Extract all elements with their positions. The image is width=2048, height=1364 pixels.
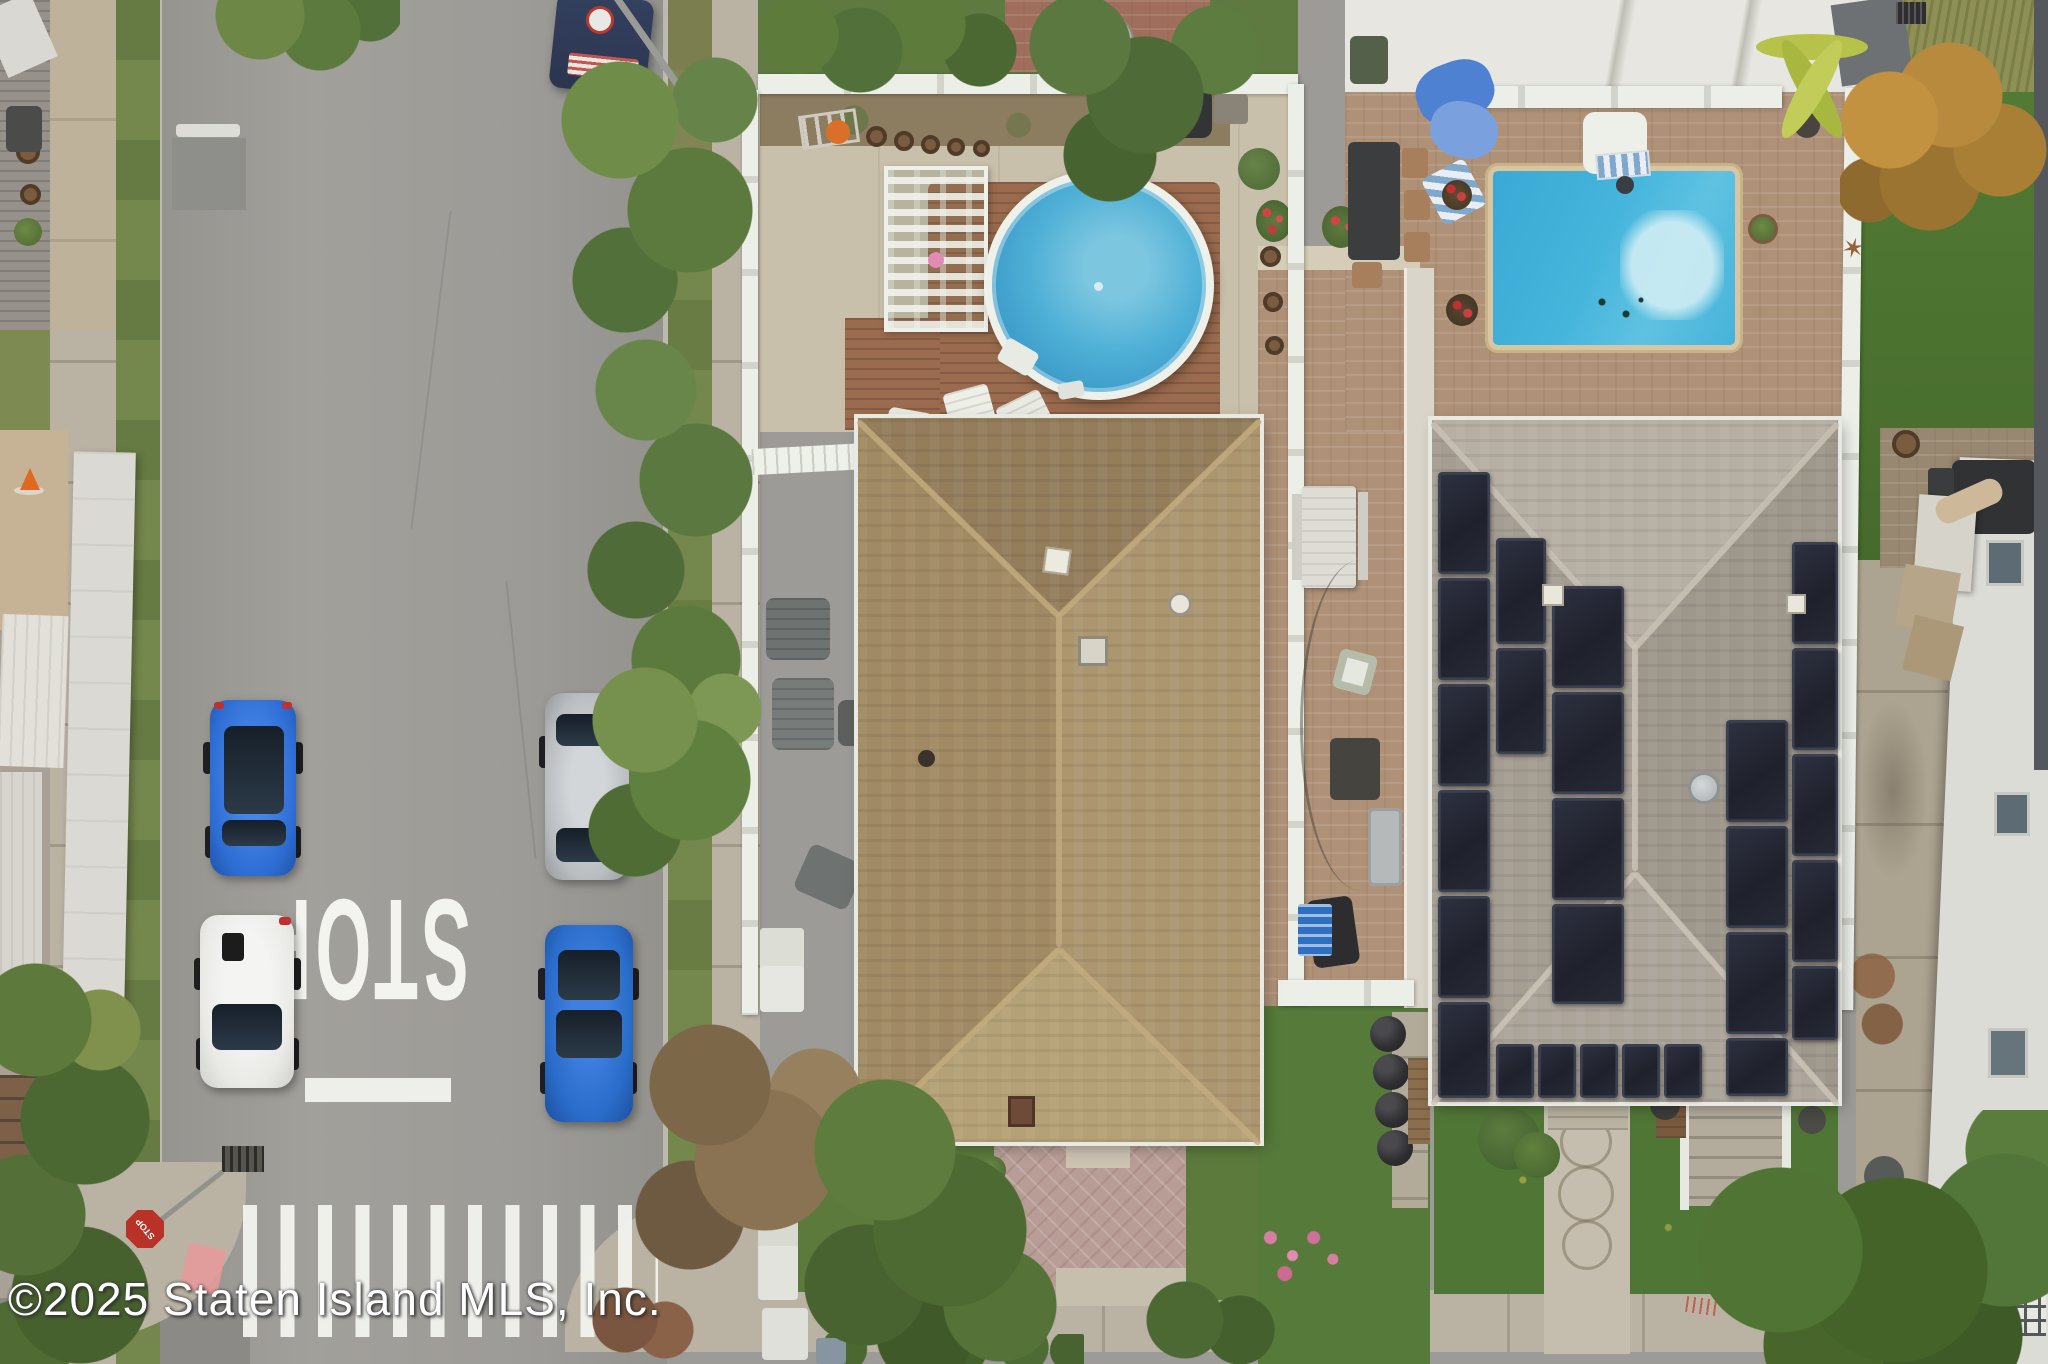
patio-sofa xyxy=(772,678,834,750)
dark-equipment xyxy=(6,106,42,152)
patio-chair xyxy=(792,842,865,911)
pink-pool-toy xyxy=(928,252,944,268)
grill-cover-round xyxy=(1375,1092,1411,1128)
neighbor-patio-chair xyxy=(1928,468,1954,498)
orange-tub xyxy=(826,120,850,144)
solar-panel xyxy=(1580,1044,1618,1098)
potted-plant xyxy=(14,218,42,246)
solar-panel xyxy=(1792,648,1838,750)
solar-panel xyxy=(1438,790,1490,892)
asphalt-patch xyxy=(172,138,246,210)
walkway-step xyxy=(1548,1104,1628,1130)
center-house-roof xyxy=(858,418,1260,1142)
patio-planter xyxy=(1892,430,1920,458)
solar-panel xyxy=(1438,1002,1490,1098)
walkway-medallion xyxy=(1562,1220,1612,1270)
solar-panel xyxy=(1726,826,1788,928)
sidewalk-left-tan-tint xyxy=(50,0,116,330)
solar-panel xyxy=(1552,692,1624,794)
solar-panel xyxy=(1792,860,1838,962)
white-awning xyxy=(0,772,42,980)
dried-leaves xyxy=(1846,940,1912,1060)
solar-panel xyxy=(1496,648,1546,754)
trees-upper-center xyxy=(1020,0,1270,220)
solar-panel xyxy=(1538,1044,1576,1098)
red-flower-plant xyxy=(1446,294,1478,326)
car-taillight xyxy=(214,702,224,709)
gap-gate-fence xyxy=(1278,980,1414,1006)
pool-center-fitting xyxy=(1094,282,1103,291)
car-sunroof-open xyxy=(222,933,244,961)
solar-panel xyxy=(1552,798,1624,900)
skylight-window xyxy=(1986,540,2024,586)
roof-vent-square xyxy=(1042,546,1071,575)
white-awning xyxy=(0,614,69,768)
center-ridge xyxy=(1632,645,1638,871)
skylight-window xyxy=(1994,792,2030,836)
flower-pot xyxy=(866,126,887,147)
garden-hose xyxy=(1300,560,1420,890)
basketball-hoop xyxy=(1616,176,1634,194)
grill-covered xyxy=(1330,738,1380,800)
flower-pot xyxy=(921,135,940,154)
mls-watermark: ©2025 Staten Island MLS, Inc. xyxy=(8,1272,908,1332)
road-paint-remnant xyxy=(176,124,240,137)
skylight-window xyxy=(1988,1028,2028,1078)
solar-panel xyxy=(1792,542,1838,644)
solar-panel xyxy=(1438,472,1490,574)
car-glass xyxy=(224,726,284,814)
aerial-photo-canvas: STOP STOP xyxy=(0,0,2048,1364)
pergola xyxy=(884,166,988,332)
flower-pot xyxy=(894,131,914,151)
car-windshield xyxy=(222,820,286,846)
green-deck-chair xyxy=(1350,36,1388,84)
storm-drain xyxy=(222,1146,264,1172)
street-tree-canopy xyxy=(545,30,780,360)
solar-panel xyxy=(1438,578,1490,680)
flower-pot xyxy=(973,140,990,157)
grill-cover-round xyxy=(1373,1054,1409,1090)
solar-panel xyxy=(1622,1044,1660,1098)
solar-panel xyxy=(1438,896,1490,998)
flower-pot xyxy=(1265,336,1284,355)
stop-line-marking xyxy=(305,1078,451,1102)
dining-chair xyxy=(1352,262,1382,288)
pool-leaves xyxy=(1590,290,1650,330)
flower-pot xyxy=(1263,292,1283,312)
walkway-stain xyxy=(1858,700,1928,880)
car-windshield xyxy=(212,1004,282,1050)
solar-panel xyxy=(1726,1038,1788,1096)
solar-panel xyxy=(1726,932,1788,1034)
walkway-medallion xyxy=(1558,1166,1614,1222)
solar-panel xyxy=(1438,684,1490,786)
solar-panel xyxy=(1792,966,1838,1040)
top-left-canopy xyxy=(210,0,400,80)
poolside-planter xyxy=(1748,214,1778,244)
wood-shelf xyxy=(1408,1058,1430,1144)
solar-panel xyxy=(1792,754,1838,856)
roof-vent-square xyxy=(1542,584,1564,606)
small-tree-driveway xyxy=(1130,1265,1290,1364)
flower-pot xyxy=(1260,246,1281,267)
solar-panel xyxy=(1496,1044,1534,1098)
outdoor-dining-table xyxy=(1348,142,1400,260)
roof-vent-round xyxy=(1168,592,1192,616)
tan-patio-left xyxy=(0,430,68,630)
car-taillight xyxy=(279,917,291,925)
roof-vent-square xyxy=(1078,636,1108,666)
dining-chair xyxy=(1404,232,1430,262)
solar-panel xyxy=(1664,1044,1702,1098)
autumn-tree xyxy=(1840,40,2048,240)
grill-cover-round xyxy=(1370,1016,1406,1052)
stainless-grill xyxy=(1368,808,1402,886)
roof-vent-square xyxy=(1786,594,1806,614)
solar-panel xyxy=(1496,538,1546,644)
black-crate xyxy=(1896,2,1926,24)
car-roof-glass xyxy=(558,950,620,1000)
satellite-dish xyxy=(1688,772,1720,804)
bottom-right-big-tree xyxy=(1680,1110,2048,1364)
dining-chair xyxy=(1404,190,1430,220)
parked-car-white xyxy=(200,915,294,1088)
planter-pot xyxy=(20,184,41,205)
roof-pipe-vent xyxy=(918,750,935,767)
garden-bushes-top xyxy=(750,0,1020,105)
car-taillight xyxy=(282,702,292,709)
center-ridge xyxy=(1056,613,1062,947)
solar-panel xyxy=(1726,720,1788,822)
long-white-carport-roof xyxy=(62,451,136,1012)
blue-supply-box xyxy=(1298,904,1332,956)
picnic-bench xyxy=(1292,494,1302,580)
solar-panel xyxy=(1552,904,1624,1004)
tree-over-silver-car xyxy=(575,630,775,900)
flower-pot xyxy=(947,138,965,156)
red-flower-plant xyxy=(1442,180,1472,210)
dining-chair xyxy=(1402,148,1428,178)
car-windshield xyxy=(556,1010,622,1058)
porch-bush xyxy=(1514,1132,1560,1178)
stop-road-marking: STOP xyxy=(330,808,470,1088)
